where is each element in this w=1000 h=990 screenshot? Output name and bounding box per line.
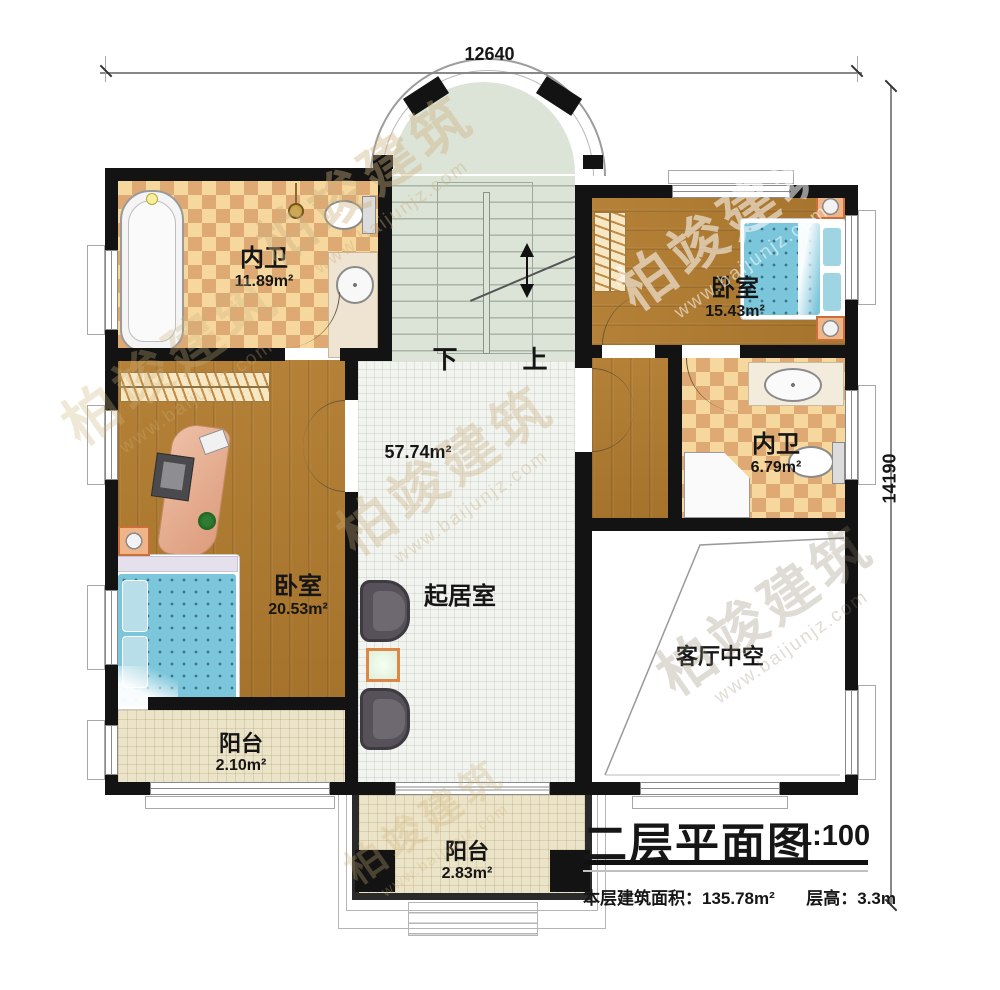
armchair bbox=[360, 688, 410, 750]
window bbox=[105, 410, 118, 480]
wall-segment bbox=[592, 518, 858, 531]
bed-headboard bbox=[116, 556, 238, 572]
window bbox=[640, 782, 780, 795]
stair-rail bbox=[483, 192, 490, 354]
dimension-height-label: 14190 bbox=[880, 431, 901, 527]
toilet-icon bbox=[324, 200, 364, 230]
room-label-bath-right: 内卫 6.79m² bbox=[716, 432, 836, 477]
armchair-seat bbox=[373, 699, 405, 739]
wall-segment bbox=[105, 782, 150, 795]
window-sill bbox=[145, 796, 335, 809]
title-rule-thick bbox=[583, 860, 868, 865]
pendant-light-bulb bbox=[288, 203, 304, 219]
room-label-bedroom-left: 卧室 20.53m² bbox=[238, 574, 358, 619]
room-area: 2.10m² bbox=[182, 757, 300, 775]
stair-arrow-up-icon bbox=[520, 236, 534, 257]
window bbox=[845, 390, 858, 480]
wall-segment bbox=[655, 345, 682, 358]
entry-steps bbox=[408, 902, 538, 936]
room-name: 客厅中空 bbox=[640, 645, 800, 670]
pillow bbox=[822, 272, 842, 312]
wall-segment bbox=[148, 697, 345, 710]
room-label-balcony-left: 阳台 2.10m² bbox=[182, 732, 300, 775]
window-sill bbox=[668, 170, 794, 184]
pillow bbox=[122, 580, 148, 632]
wall-segment bbox=[105, 480, 118, 590]
wall-segment bbox=[105, 665, 118, 725]
room-label-bath-top-left: 内卫 11.89m² bbox=[194, 246, 334, 291]
room-area: 11.89m² bbox=[194, 273, 334, 291]
window bbox=[672, 185, 790, 198]
stair-arrow-down-icon bbox=[520, 284, 534, 305]
wall-segment bbox=[845, 185, 858, 215]
stairs-down-label: 下 bbox=[428, 346, 462, 374]
wall-segment bbox=[345, 360, 358, 400]
window bbox=[845, 215, 858, 300]
bathtub-faucet-icon bbox=[146, 193, 158, 205]
pillow bbox=[822, 227, 842, 267]
room-name: 起居室 bbox=[405, 584, 515, 611]
window bbox=[105, 250, 118, 330]
room-name: 内卫 bbox=[716, 432, 836, 459]
window bbox=[105, 725, 118, 775]
wall-segment bbox=[330, 782, 395, 795]
room-area: 6.79m² bbox=[716, 459, 836, 477]
room-area: 20.53m² bbox=[238, 601, 358, 619]
room-name: 阳台 bbox=[182, 732, 300, 757]
window-sill bbox=[87, 405, 105, 485]
window-sill bbox=[87, 585, 105, 670]
window-sill bbox=[87, 245, 105, 335]
floor-plan: 内卫 11.89m² 卧室 15.43m² 内卫 6.79m² 卧室 20.53… bbox=[0, 0, 1000, 990]
dimension-tick bbox=[100, 65, 113, 78]
wall-segment bbox=[583, 155, 603, 169]
wall-segment bbox=[575, 185, 592, 368]
floor-height-label: 层高： bbox=[806, 889, 857, 908]
balcony-column bbox=[355, 850, 395, 892]
floor-height-value: 3.3m bbox=[857, 889, 896, 908]
nightstand bbox=[816, 316, 845, 341]
room-area: 57.74m² bbox=[358, 442, 478, 462]
wall-segment bbox=[373, 155, 393, 169]
plan-scale: 1:100 bbox=[796, 820, 870, 853]
balcony-railing bbox=[352, 893, 592, 900]
wall-segment bbox=[378, 168, 392, 361]
wall-segment bbox=[575, 452, 592, 795]
room-label-void: 客厅中空 bbox=[640, 645, 800, 670]
dimension-width-label: 12640 bbox=[442, 44, 537, 65]
window bbox=[150, 782, 330, 795]
window-sill bbox=[858, 385, 876, 485]
armchair bbox=[360, 580, 410, 642]
room-area: 15.43m² bbox=[650, 303, 820, 321]
nightstand bbox=[118, 526, 150, 556]
wall-segment bbox=[105, 168, 118, 250]
plan-stats: 本层建筑面积：135.78m² 层高：3.3m bbox=[583, 884, 896, 909]
monitor-screen bbox=[160, 462, 185, 491]
toilet-tank bbox=[362, 196, 376, 234]
wall-segment bbox=[845, 480, 858, 690]
sink-basin-icon bbox=[764, 368, 822, 402]
stairs-up-text: 上 bbox=[518, 346, 552, 374]
wall-segment bbox=[550, 782, 640, 795]
wall-segment bbox=[345, 708, 358, 782]
window bbox=[845, 690, 858, 775]
plant-icon bbox=[198, 512, 216, 530]
wardrobe bbox=[594, 212, 626, 292]
armchair-seat bbox=[373, 591, 405, 631]
room-label-balcony-bottom: 阳台 2.83m² bbox=[402, 840, 532, 883]
wall-segment bbox=[105, 348, 285, 361]
wall-segment bbox=[592, 185, 672, 198]
wall-segment bbox=[105, 168, 385, 181]
room-name: 阳台 bbox=[402, 840, 532, 865]
wall-segment bbox=[668, 358, 682, 518]
window bbox=[105, 590, 118, 665]
stairs-down-text: 下 bbox=[428, 346, 462, 374]
window-sill bbox=[858, 685, 876, 780]
sink-icon bbox=[336, 266, 374, 304]
wall-segment bbox=[780, 782, 858, 795]
wardrobe bbox=[120, 372, 270, 402]
room-label-living: 起居室 bbox=[405, 584, 515, 611]
room-name: 卧室 bbox=[238, 574, 358, 601]
side-table bbox=[366, 648, 400, 682]
pendant-light-icon bbox=[295, 183, 297, 205]
living-room-area-label: 57.74m² bbox=[358, 442, 478, 462]
room-name: 卧室 bbox=[650, 276, 820, 303]
title-rule-thin bbox=[583, 870, 868, 872]
built-area-value: 135.78m² bbox=[702, 889, 775, 908]
wall-segment bbox=[105, 330, 118, 410]
wall-segment bbox=[740, 345, 858, 358]
keyboard-icon bbox=[199, 428, 230, 455]
dimension-line-top bbox=[100, 72, 862, 74]
wall-segment bbox=[592, 345, 602, 358]
room-label-bedroom-top-right: 卧室 15.43m² bbox=[650, 276, 820, 321]
sliding-door bbox=[395, 782, 550, 795]
built-area-label: 本层建筑面积： bbox=[583, 889, 702, 908]
window-sill bbox=[858, 210, 876, 305]
room-area: 2.83m² bbox=[402, 865, 532, 883]
bathtub-inner bbox=[128, 200, 176, 342]
room-name: 内卫 bbox=[194, 246, 334, 273]
window-sill bbox=[87, 720, 105, 780]
stairs-up-label: 上 bbox=[518, 346, 552, 374]
